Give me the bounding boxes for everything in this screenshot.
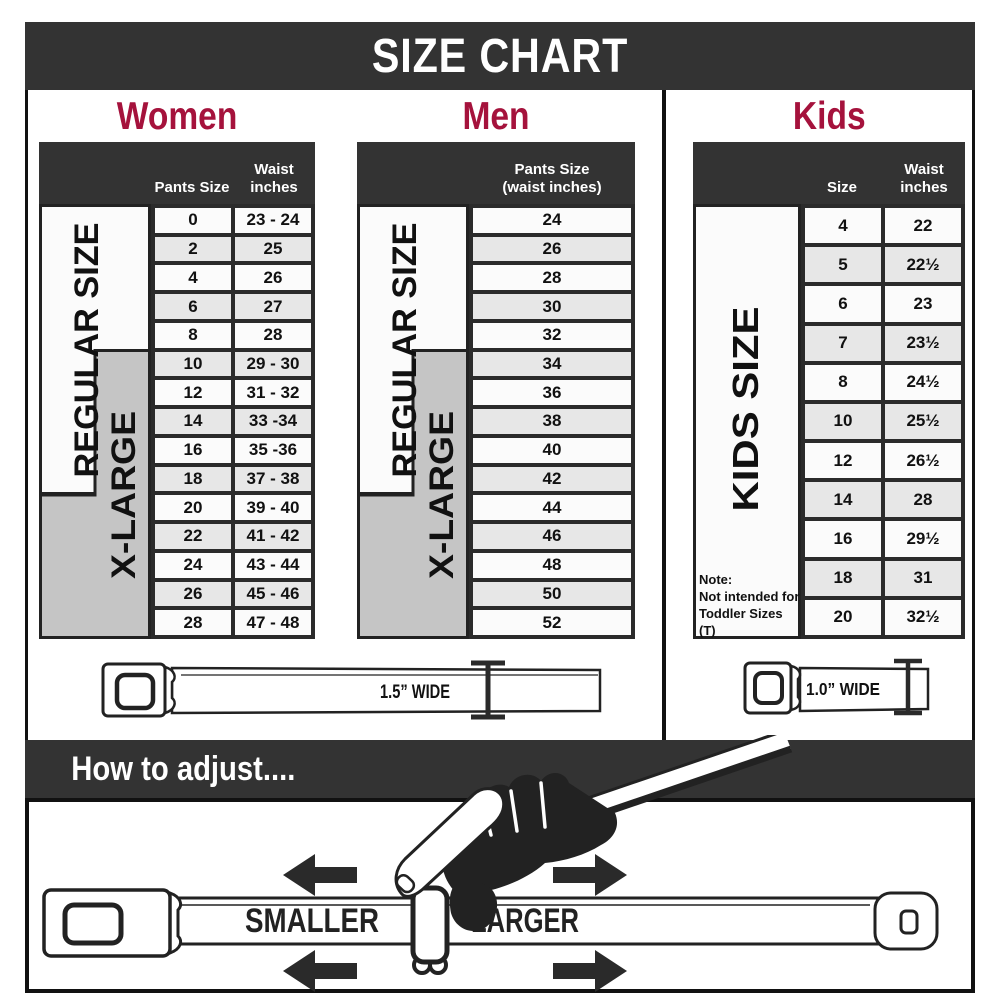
kids-waist-header: Waist inches xyxy=(883,142,965,204)
size-cell: 30 xyxy=(473,294,631,319)
women-xlarge-label: X-LARGE xyxy=(105,411,143,579)
size-cell: 31 xyxy=(885,561,961,596)
adjust-illustration: SMALLER LARGER xyxy=(25,735,975,993)
women-size-table: Pants Size Waist inches REGULAR SIZE X-L… xyxy=(39,142,315,644)
size-cell: 40 xyxy=(473,438,631,463)
women-waist-header: Waist inches xyxy=(233,142,315,204)
size-cell: 4 xyxy=(805,208,881,243)
size-cell: 44 xyxy=(473,495,631,520)
size-cell: 23½ xyxy=(885,326,961,361)
size-cell: 22½ xyxy=(885,247,961,282)
men-size-table: Pants Size (waist inches) REGULAR SIZE X… xyxy=(357,142,635,644)
size-cell: 12 xyxy=(805,443,881,478)
adult-belt-illustration: 1.5” WIDE xyxy=(101,655,611,723)
size-cell: 32 xyxy=(473,323,631,348)
size-cell: 4 xyxy=(155,265,231,290)
adult-belt-width-label: 1.5” WIDE xyxy=(380,682,450,703)
size-cell: 39 - 40 xyxy=(235,495,311,520)
size-cell: 28 xyxy=(885,482,961,517)
size-cell: 16 xyxy=(805,521,881,556)
header-spacer xyxy=(357,142,469,204)
size-cell: 38 xyxy=(473,409,631,434)
size-cell: 10 xyxy=(155,352,231,377)
size-cell: 23 - 24 xyxy=(235,208,311,233)
size-cell: 23 xyxy=(885,286,961,321)
kids-table-body: 422522½623723½824½1025½1226½14281629½183… xyxy=(801,204,965,639)
size-cell: 37 - 38 xyxy=(235,467,311,492)
size-chart-page: SIZE CHART Women Men Kids Pants Size Wai… xyxy=(0,0,1000,1000)
size-cell: 7 xyxy=(805,326,881,361)
women-table-body: 023 - 242254266278281029 - 301231 - 3214… xyxy=(151,204,315,639)
size-cell: 24 xyxy=(155,553,231,578)
size-cell: 18 xyxy=(155,467,231,492)
header-spacer xyxy=(39,142,151,204)
kids-table-header: Size Waist inches xyxy=(693,142,965,204)
size-cell: 20 xyxy=(155,495,231,520)
size-cell: 26 xyxy=(155,582,231,607)
women-table-header: Pants Size Waist inches xyxy=(39,142,315,204)
arrow-right-icon xyxy=(553,854,627,896)
size-cell: 26½ xyxy=(885,443,961,478)
size-cell: 42 xyxy=(473,467,631,492)
size-cell: 43 - 44 xyxy=(235,553,311,578)
kids-note: Note: Not intended for Toddler Sizes (T) xyxy=(699,572,801,640)
men-table-body: 242628303234363840424446485052 xyxy=(469,204,635,639)
size-cell: 24 xyxy=(473,208,631,233)
size-cell: 28 xyxy=(155,610,231,635)
women-pants-size-header: Pants Size xyxy=(151,142,233,204)
women-regular-size-label: REGULAR SIZE xyxy=(68,223,106,478)
kids-size-label: KIDS SIZE xyxy=(725,307,766,512)
men-regular-size-label: REGULAR SIZE xyxy=(386,223,424,478)
size-cell: 10 xyxy=(805,404,881,439)
size-cell: 31 - 32 xyxy=(235,380,311,405)
men-size-category-graphic: REGULAR SIZE X-LARGE xyxy=(357,204,469,639)
men-size-category-column: REGULAR SIZE X-LARGE xyxy=(357,204,469,644)
men-table-header: Pants Size (waist inches) xyxy=(357,142,635,204)
size-cell: 18 xyxy=(805,561,881,596)
seatbelt-buckle-icon xyxy=(745,663,800,713)
size-cell: 8 xyxy=(155,323,231,348)
size-cell: 41 - 42 xyxy=(235,524,311,549)
seatbelt-buckle-icon xyxy=(44,890,181,956)
size-cell: 26 xyxy=(235,265,311,290)
size-cell: 48 xyxy=(473,553,631,578)
belt-slider xyxy=(413,888,447,973)
size-cell: 12 xyxy=(155,380,231,405)
size-cell: 25½ xyxy=(885,404,961,439)
size-cell: 28 xyxy=(235,323,311,348)
size-cell: 29½ xyxy=(885,521,961,556)
kids-belt-width-label: 1.0” WIDE xyxy=(806,679,880,699)
size-cell: 22 xyxy=(885,208,961,243)
larger-label: LARGER xyxy=(471,902,579,940)
size-cell: 14 xyxy=(155,409,231,434)
size-cell: 8 xyxy=(805,365,881,400)
men-xlarge-label: X-LARGE xyxy=(423,411,461,579)
size-cell: 28 xyxy=(473,265,631,290)
size-cell: 2 xyxy=(155,237,231,262)
size-cell: 16 xyxy=(155,438,231,463)
women-size-category-column: REGULAR SIZE X-LARGE xyxy=(39,204,151,644)
seatbelt-buckle-icon xyxy=(103,664,175,716)
men-heading: Men xyxy=(357,94,635,140)
size-cell: 25 xyxy=(235,237,311,262)
kids-heading: Kids xyxy=(693,94,965,140)
title-bar: SIZE CHART xyxy=(25,22,975,90)
size-cell: 6 xyxy=(155,294,231,319)
arrow-right-icon xyxy=(553,950,627,992)
smaller-label: SMALLER xyxy=(245,902,379,940)
size-cell: 14 xyxy=(805,482,881,517)
kids-belt-illustration: 1.0” WIDE xyxy=(743,655,938,720)
arrow-left-icon xyxy=(283,854,357,896)
size-cell: 6 xyxy=(805,286,881,321)
size-cell: 52 xyxy=(473,610,631,635)
header-spacer xyxy=(693,142,801,204)
belt-tip xyxy=(875,893,937,949)
size-cell: 35 -36 xyxy=(235,438,311,463)
women-heading: Women xyxy=(39,94,315,140)
size-cell: 0 xyxy=(155,208,231,233)
size-cell: 45 - 46 xyxy=(235,582,311,607)
size-cell: 47 - 48 xyxy=(235,610,311,635)
page-title: SIZE CHART xyxy=(372,29,628,84)
size-cell: 5 xyxy=(805,247,881,282)
size-cell: 29 - 30 xyxy=(235,352,311,377)
size-cell: 50 xyxy=(473,582,631,607)
size-cell: 36 xyxy=(473,380,631,405)
kids-size-table: Size Waist inches KIDS SIZE Note: Not in… xyxy=(693,142,965,644)
size-cell: 46 xyxy=(473,524,631,549)
size-tables-section: Women Men Kids Pants Size Waist inches xyxy=(25,90,975,740)
section-divider xyxy=(662,90,666,740)
arrow-left-icon xyxy=(283,950,357,992)
size-cell: 27 xyxy=(235,294,311,319)
women-size-category-graphic: REGULAR SIZE X-LARGE xyxy=(39,204,151,639)
kids-size-category-column: KIDS SIZE Note: Not intended for Toddler… xyxy=(693,204,801,644)
size-cell: 24½ xyxy=(885,365,961,400)
size-cell: 26 xyxy=(473,237,631,262)
size-cell: 34 xyxy=(473,352,631,377)
size-cell: 33 -34 xyxy=(235,409,311,434)
kids-size-header: Size xyxy=(801,142,883,204)
size-cell: 22 xyxy=(155,524,231,549)
size-cell: 32½ xyxy=(885,600,961,635)
size-cell: 20 xyxy=(805,600,881,635)
men-pants-size-header: Pants Size (waist inches) xyxy=(469,142,635,204)
